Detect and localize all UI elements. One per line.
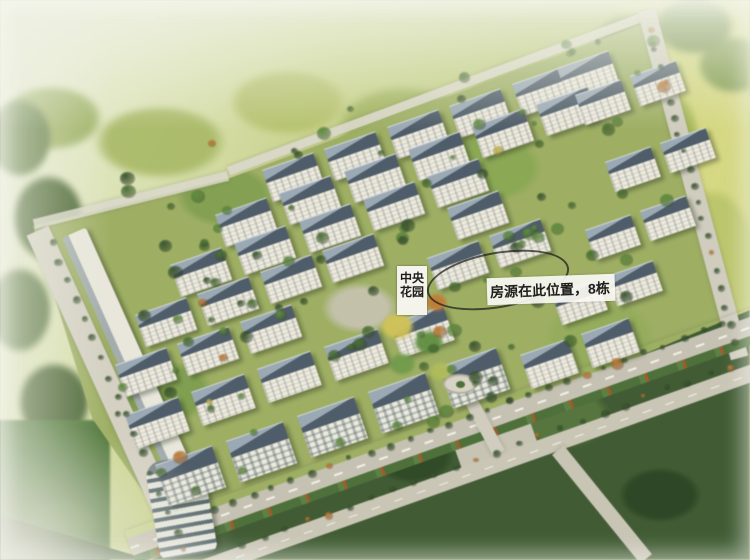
tree (493, 146, 504, 156)
tree (506, 398, 513, 404)
tree (206, 399, 213, 405)
tree (718, 285, 725, 291)
tree (473, 458, 478, 463)
tree (398, 236, 408, 245)
scene (0, 0, 750, 560)
tree (208, 140, 216, 147)
tree (583, 372, 591, 380)
tree (250, 429, 258, 436)
tree (368, 495, 373, 500)
tree (172, 368, 179, 374)
tree (580, 419, 585, 424)
tree (466, 414, 474, 421)
tree (164, 387, 177, 398)
tree (508, 344, 515, 350)
tree (308, 470, 317, 478)
tree (410, 479, 417, 485)
tree (721, 305, 727, 311)
tree (714, 268, 720, 273)
garden-label-line1: 中央 (400, 272, 424, 286)
tree (368, 450, 376, 457)
tree (620, 254, 633, 266)
tree (173, 315, 183, 324)
tree (674, 132, 680, 137)
tree (557, 425, 563, 430)
tree (417, 331, 425, 338)
tree (191, 190, 205, 203)
tree (368, 286, 379, 296)
tree (200, 239, 209, 247)
central-garden-label: 中央 花园 (397, 266, 427, 315)
tree (469, 341, 481, 351)
haze-bottom-left (0, 420, 240, 560)
tree (698, 216, 704, 221)
tree (328, 350, 341, 362)
tree (326, 463, 333, 469)
tree (123, 411, 129, 417)
tree (545, 384, 553, 391)
tree (568, 202, 575, 209)
haze-top (0, 0, 750, 130)
tree (167, 203, 175, 210)
tree (325, 512, 334, 520)
tree (486, 392, 498, 402)
tree (731, 339, 738, 346)
tree (275, 310, 287, 321)
tree (210, 278, 220, 287)
tree (389, 486, 395, 492)
tree (601, 410, 609, 418)
tree (719, 321, 726, 327)
tree (488, 376, 499, 386)
tree (120, 172, 134, 185)
tree (115, 394, 122, 400)
tree (493, 450, 501, 457)
tree (516, 441, 522, 447)
tree (215, 250, 227, 261)
tree (485, 408, 490, 413)
tree (401, 219, 415, 232)
tree (447, 324, 462, 337)
tree (287, 477, 294, 484)
garden-label-line2: 花园 (400, 286, 424, 300)
tree (222, 206, 232, 215)
tree (660, 345, 665, 350)
tree (316, 232, 329, 244)
tree (213, 224, 223, 233)
tree (238, 393, 245, 400)
tree (347, 344, 355, 351)
tree (138, 310, 151, 322)
tree (262, 535, 269, 541)
tree (198, 299, 207, 307)
tree (617, 189, 628, 199)
tree (532, 232, 545, 243)
tree (347, 505, 354, 511)
tree (696, 200, 701, 205)
tree (447, 365, 456, 374)
tree (681, 149, 686, 154)
tree (708, 370, 714, 375)
tree (183, 337, 194, 347)
tree (564, 335, 577, 347)
tree (251, 492, 259, 499)
tree (586, 250, 598, 261)
tree (427, 428, 434, 434)
tree (168, 266, 182, 279)
tree (247, 299, 258, 309)
listing-location-note: 房源在此位置，8栋 (487, 274, 616, 305)
tree (621, 358, 627, 364)
tree (641, 394, 646, 399)
tree (439, 405, 454, 418)
tree (727, 365, 735, 372)
tree (660, 194, 675, 207)
tree (159, 240, 172, 252)
tree (219, 354, 228, 362)
tree (378, 150, 384, 156)
tree (727, 321, 735, 329)
aerial-rendering: 中央 花园 房源在此位置，8栋 (0, 0, 750, 560)
plaza-green (456, 381, 465, 388)
listing-note-text: 房源在此位置，8栋 (490, 277, 610, 301)
tree (240, 331, 253, 343)
tree (563, 378, 570, 384)
tree (419, 362, 429, 371)
